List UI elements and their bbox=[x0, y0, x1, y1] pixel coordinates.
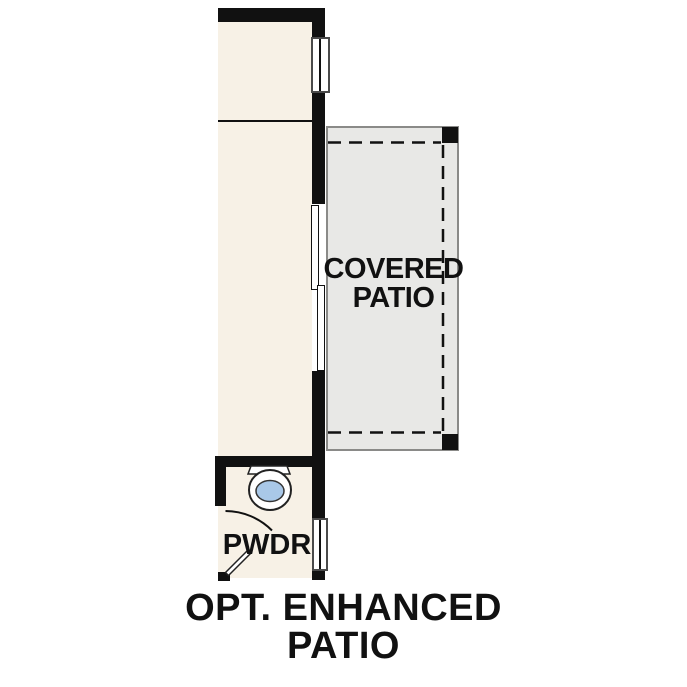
wall-right-lower bbox=[312, 570, 325, 580]
wall-top bbox=[218, 8, 325, 22]
powder-room-label: PWDR bbox=[217, 531, 317, 560]
patio-post-bottom-right bbox=[442, 434, 458, 450]
floor-plan: COVERED PATIO PWDR OPT. ENHANCED PATIO bbox=[0, 0, 687, 687]
covered-patio-label-line2: PATIO bbox=[316, 284, 471, 313]
window-glazing-line bbox=[319, 520, 321, 569]
plan-caption: OPT. ENHANCED PATIO bbox=[0, 589, 687, 665]
window-glazing-line bbox=[319, 39, 321, 91]
wall-powder-room-left bbox=[215, 456, 226, 506]
interior-room-floor bbox=[218, 20, 313, 578]
patio-post-top-right bbox=[442, 127, 458, 143]
window-symbol-top bbox=[311, 37, 330, 93]
wall-powder-room-top bbox=[215, 456, 313, 467]
covered-patio-label: COVERED PATIO bbox=[316, 255, 471, 313]
interior-wall-line bbox=[218, 120, 313, 122]
wall-right-middle bbox=[312, 371, 325, 519]
plan-caption-line1: OPT. ENHANCED bbox=[0, 589, 687, 627]
plan-caption-line2: PATIO bbox=[0, 627, 687, 665]
door-hinge-block bbox=[218, 572, 230, 581]
covered-patio-label-line1: COVERED bbox=[316, 255, 471, 284]
